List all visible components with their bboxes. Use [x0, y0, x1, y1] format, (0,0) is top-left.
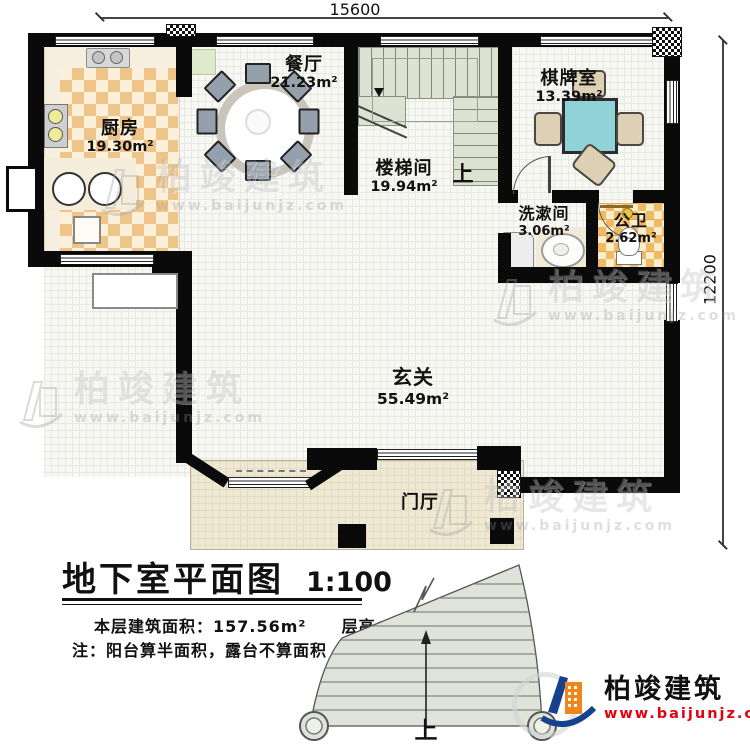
wall-bottom-right [520, 477, 680, 493]
window [666, 80, 678, 124]
hatched-pier [497, 470, 521, 498]
room-name: 公卫 [596, 212, 666, 231]
company-logo-icon [540, 668, 596, 730]
porch-column [490, 518, 514, 544]
wall-chess-bottom [552, 190, 599, 203]
chess-room-door [548, 156, 551, 193]
wall-right-upper [664, 33, 680, 283]
kitchen-side-table [73, 216, 101, 244]
floor-plan-canvas: 15600 12200 [0, 0, 750, 755]
dining-chair [299, 109, 320, 135]
chess-room-label: 棋牌室 13.39m² [515, 68, 623, 106]
planter [188, 49, 216, 75]
foyer-label: 门厅 [378, 492, 462, 513]
area-value: 157.56m² [213, 617, 306, 636]
plan-title: 地下室平面图 [62, 552, 284, 601]
room-area: 55.49m² [348, 390, 478, 408]
room-area: 19.94m² [348, 179, 460, 196]
window [540, 36, 654, 45]
area-label: 本层建筑面积： [94, 617, 213, 636]
room-name: 餐厅 [248, 54, 360, 75]
room-name: 洗漱间 [502, 205, 586, 224]
dining-label: 餐厅 21.23m² [248, 54, 360, 92]
dining-table-center [245, 109, 271, 135]
room-area: 19.30m² [60, 139, 180, 156]
right-dimension-label: 12200 [701, 240, 720, 320]
window [380, 36, 479, 45]
stair-up-label: 上 [448, 162, 478, 187]
wall-hall-left [176, 251, 192, 463]
wall-left [28, 33, 44, 267]
room-area: 21.23m² [248, 75, 360, 92]
exterior-stair-up-label: 上 [406, 718, 446, 745]
hall-bottom-window [377, 449, 479, 460]
top-dimension-label: 15600 [300, 0, 410, 19]
game-chair [616, 112, 644, 146]
wall-washroom-bottom [498, 267, 680, 283]
bathroom-label: 公卫 2.62m² [596, 212, 666, 246]
wall-right-lower [664, 320, 680, 493]
company-name: 柏竣建筑 [604, 676, 750, 703]
stairwell-label: 楼梯间 19.94m² [348, 158, 460, 196]
side-window-bay [6, 166, 38, 212]
room-area: 2.62m² [596, 231, 666, 246]
kitchen-label: 厨房 19.30m² [60, 118, 180, 156]
room-name: 棋牌室 [515, 68, 623, 89]
bay-window [228, 477, 314, 488]
stair-direction-arrow [374, 88, 384, 97]
wall-kitchen-dining [176, 47, 192, 97]
lower-window-bay [92, 273, 178, 309]
hatched-flue [166, 24, 196, 37]
kitchen-stool [88, 172, 122, 206]
sink-basin [92, 51, 105, 64]
company-logo: 柏竣建筑 www.baijunjz.com [540, 668, 750, 730]
dining-chair [245, 160, 271, 181]
company-website: www.baijunjz.com [604, 706, 750, 722]
dining-chair [197, 109, 218, 135]
porch-post [307, 448, 377, 470]
kitchen-stool [52, 172, 86, 206]
right-dimension-line [722, 40, 724, 545]
game-chair [534, 112, 562, 146]
room-name: 楼梯间 [348, 158, 460, 179]
sink-basin [110, 51, 123, 64]
note-line: 注：阳台算半面积，露台不算面积 [72, 637, 327, 661]
porch-column [338, 524, 366, 548]
stair-rail-outline [372, 58, 478, 122]
window [216, 36, 314, 45]
wall-chess-left [498, 47, 512, 203]
bay-dashed-line [236, 470, 306, 472]
washroom-label: 洗漱间 3.06m² [502, 205, 586, 239]
room-name: 玄关 [348, 366, 478, 390]
room-area: 3.06m² [502, 224, 586, 239]
window [60, 254, 154, 264]
window [666, 283, 678, 322]
sink-drain [553, 243, 569, 256]
wall-corner [499, 446, 521, 470]
hall-label: 玄关 55.49m² [348, 366, 478, 408]
window [55, 36, 155, 45]
wall-chess-bottom [633, 190, 667, 203]
room-name: 门厅 [378, 492, 462, 513]
hatched-pier [652, 27, 682, 57]
room-name: 厨房 [60, 118, 180, 139]
room-area: 13.39m² [515, 89, 623, 106]
